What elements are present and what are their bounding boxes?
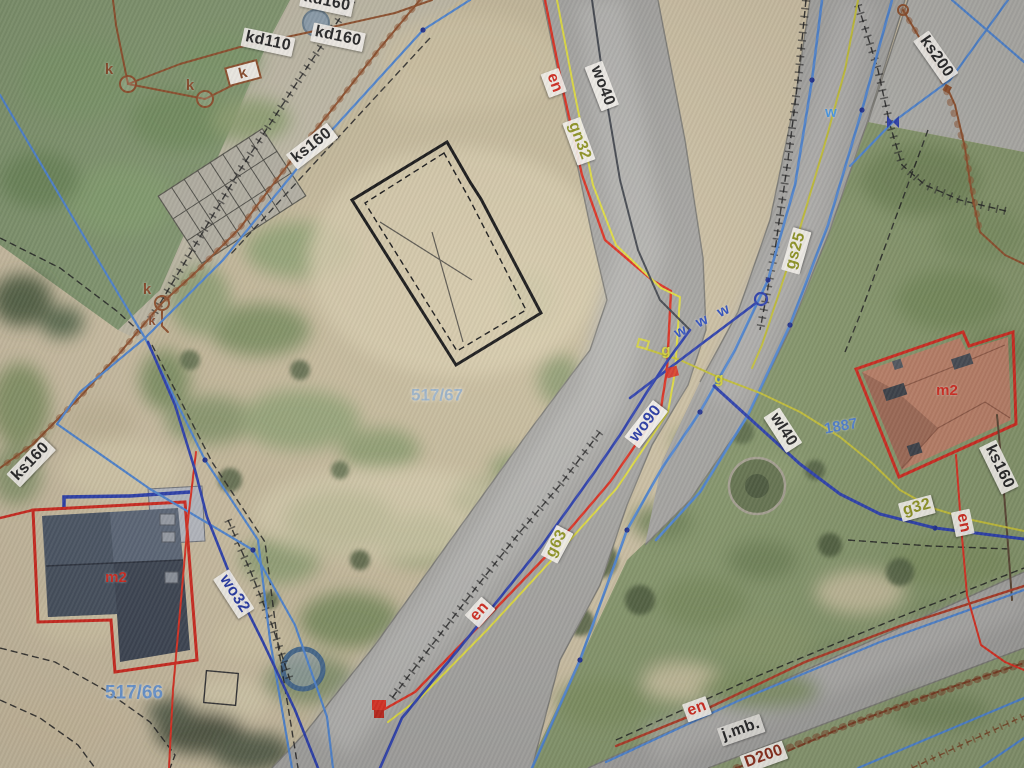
marker-letter-k-1: k (105, 62, 113, 79)
utility-label-ks160-nw: ks160 (286, 123, 338, 170)
utility-label-ks200: ks200 (913, 30, 958, 83)
utility-label-ks160-e: ks160 (979, 440, 1019, 495)
utility-label-en-sw: en (465, 596, 496, 627)
utility-label-kd110: kd110 (241, 28, 296, 57)
utility-label-kd160-top: kd160 (299, 0, 355, 17)
utility-label-en-top: en (541, 68, 567, 98)
marker-letter-k-3: k (237, 65, 249, 83)
utility-label-ks160-w: ks160 (6, 437, 55, 487)
marker-letter-k-5: k (148, 314, 155, 328)
parcel-number-517-66: 517/66 (105, 684, 163, 705)
utility-label-wl40: wl40 (764, 407, 802, 452)
utility-label-wo32: wo32 (213, 569, 254, 619)
marker-letters-www: w w w (672, 300, 736, 343)
utility-label-gn32: gn32 (563, 117, 596, 165)
marker-letter-w: w (825, 105, 837, 122)
parcel-number-517-67: 517/67 (411, 387, 463, 406)
marker-letter-g-2: g (714, 371, 723, 388)
utility-label-en-se: en (682, 696, 712, 722)
marker-letter-k-2: k (186, 78, 194, 95)
utility-label-kd160: kd160 (310, 22, 366, 51)
utility-label-g63: g63 (541, 524, 574, 563)
utility-label-wo90: wo90 (624, 400, 668, 449)
utility-label-en-right: en (951, 509, 974, 538)
building-mark-m2-left: m2 (105, 570, 127, 587)
utility-label-wo40: wo40 (585, 61, 619, 112)
marker-letter-k-4: k (143, 282, 151, 299)
road-label-jmb: j.mb. (717, 714, 765, 746)
parcel-number-1887: 1887 (823, 416, 859, 438)
utility-label-g32: g32 (898, 495, 936, 522)
utility-label-gs25: gs25 (781, 227, 811, 274)
utility-label-d200: D200 (739, 740, 788, 768)
marker-letter-g-1: g (661, 343, 670, 360)
map-viewport[interactable]: kd160 kd110 kd160 ks160 wo40 en gn32 ks2… (0, 0, 1024, 768)
building-mark-m2-right: m2 (936, 383, 958, 400)
map-labels: kd160 kd110 kd160 ks160 wo40 en gn32 ks2… (0, 0, 1024, 768)
